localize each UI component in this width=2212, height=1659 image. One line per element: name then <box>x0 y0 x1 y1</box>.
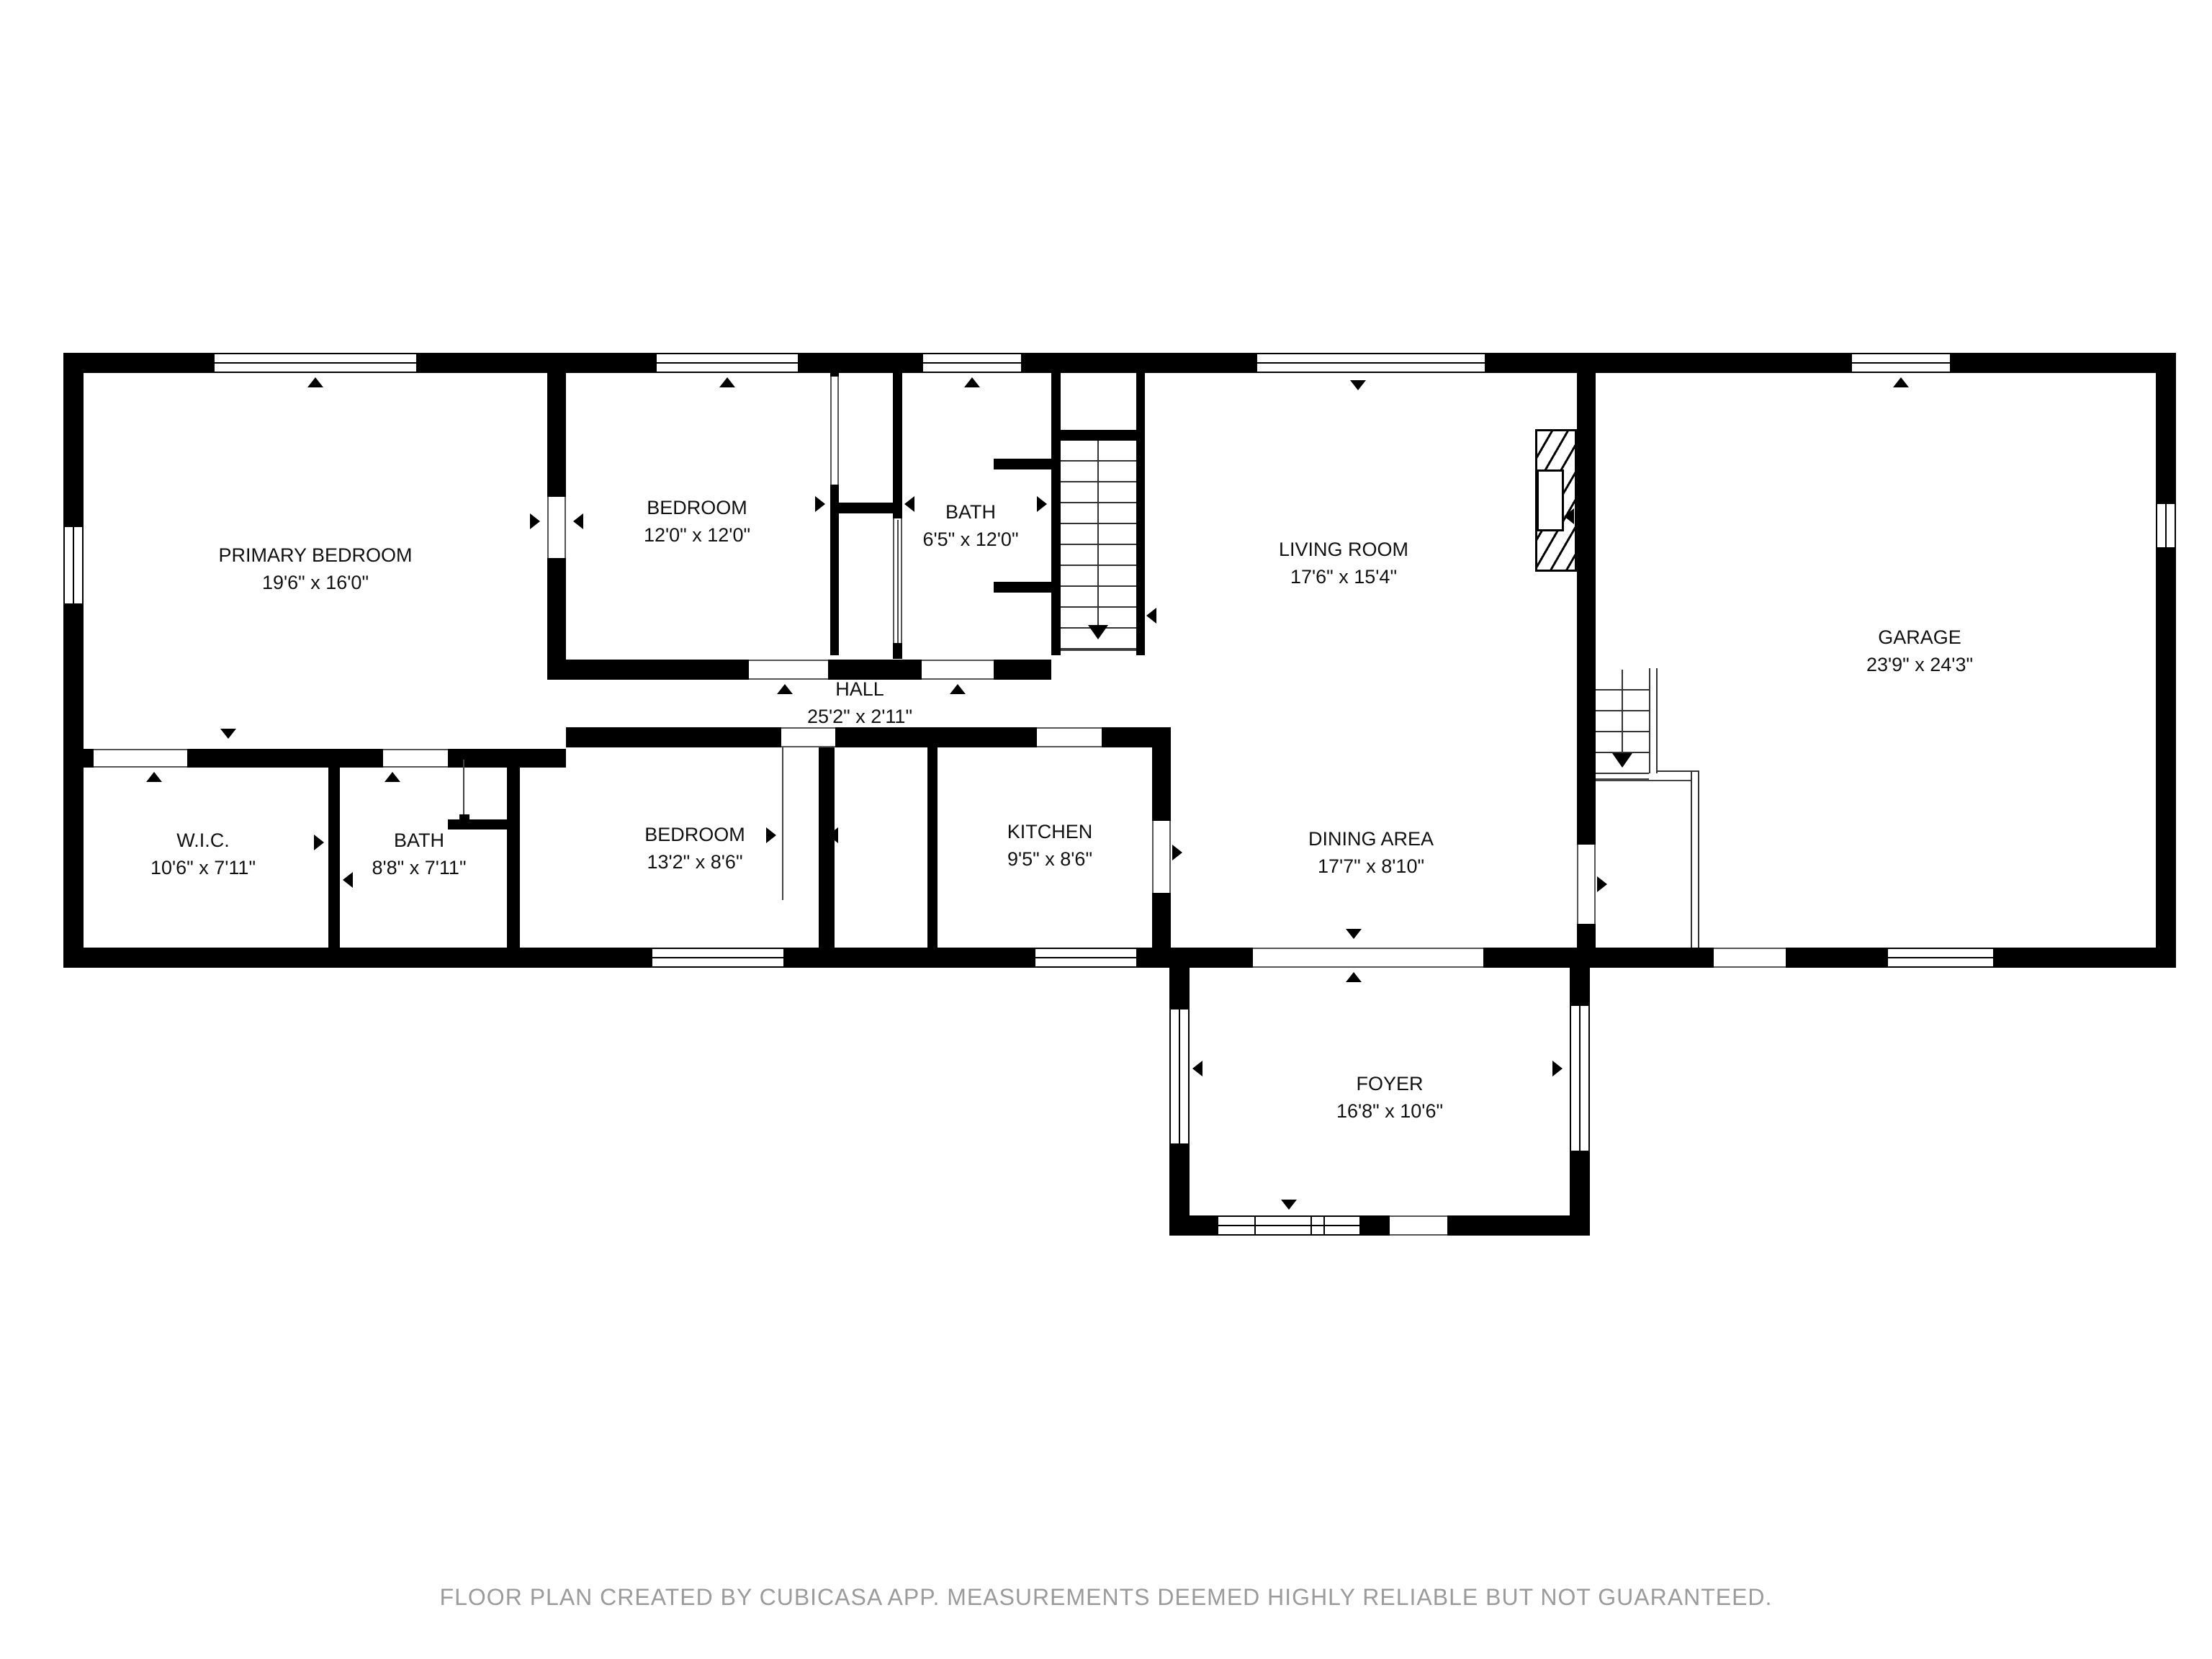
stair-down-arrow <box>1088 625 1108 639</box>
room-dims: 25'2" x 2'11" <box>807 703 912 730</box>
door-arrow <box>343 872 353 888</box>
door-arrow <box>1552 1061 1563 1076</box>
door-opening <box>1037 727 1102 747</box>
door-arrow <box>573 513 583 529</box>
room-name: BEDROOM <box>644 821 745 848</box>
floor-plan: PRIMARY BEDROOM 19'6" x 16'0" BEDROOM 12… <box>0 0 2212 1659</box>
room-dims: 19'6" x 16'0" <box>218 569 412 596</box>
door-arrow <box>1192 1061 1202 1076</box>
door-arrow <box>815 496 825 512</box>
door-arrow <box>1146 608 1156 624</box>
door-opening <box>1577 845 1596 924</box>
room-name: HALL <box>807 675 912 703</box>
stair-rail-line <box>1649 668 1650 773</box>
door-arrow <box>1037 496 1047 512</box>
door-opening <box>94 749 187 768</box>
door-arrow <box>950 684 966 694</box>
wall <box>507 749 520 948</box>
room-name: BEDROOM <box>644 494 750 521</box>
room-label-garage: GARAGE 23'9" x 24'3" <box>1866 624 1973 678</box>
door-arrow <box>1597 876 1607 892</box>
door-arrow <box>146 772 162 782</box>
window <box>213 353 418 373</box>
room-label-bath-top: BATH 6'5" x 12'0" <box>922 498 1018 553</box>
window-mullion <box>1254 1217 1256 1234</box>
room-name: GARAGE <box>1866 624 1973 651</box>
window-arrow <box>964 377 980 387</box>
window <box>1169 1008 1190 1145</box>
wall <box>994 459 1051 469</box>
wall <box>994 582 1051 593</box>
room-name: FOYER <box>1336 1070 1443 1097</box>
window <box>1851 353 1951 373</box>
room-name: BATH <box>372 827 466 854</box>
door-opening <box>1152 821 1171 893</box>
wall <box>839 503 893 513</box>
room-label-wic: W.I.C. 10'6" x 7'11" <box>150 827 256 881</box>
stair-landing-outline <box>1596 780 1691 948</box>
door-arrow <box>1346 972 1362 982</box>
window <box>63 526 84 605</box>
window-arrow <box>719 377 735 387</box>
window-arrow <box>1350 380 1366 390</box>
room-name: DINING AREA <box>1308 825 1434 853</box>
room-dims: 12'0" x 12'0" <box>644 521 750 549</box>
window-mullion <box>1310 1217 1312 1234</box>
window-arrow <box>1893 377 1909 387</box>
room-dims: 23'9" x 24'3" <box>1866 651 1973 678</box>
room-dims: 10'6" x 7'11" <box>150 854 256 881</box>
stair-rail-line <box>1656 668 1658 773</box>
stair-direction-line <box>1097 441 1099 626</box>
room-name: KITCHEN <box>1007 818 1093 845</box>
door-leaf <box>782 747 783 900</box>
door-leaf <box>463 760 464 814</box>
wall <box>1051 373 1061 655</box>
window <box>1034 948 1138 968</box>
wall <box>459 814 469 823</box>
room-name: W.I.C. <box>150 827 256 854</box>
wall <box>63 353 84 968</box>
sliding-closet-door <box>830 377 839 485</box>
window-arrow <box>307 377 323 387</box>
window <box>655 353 799 373</box>
door-arrow <box>1281 1200 1297 1210</box>
wall <box>893 643 902 659</box>
wall <box>1051 430 1145 441</box>
stair-down-arrow <box>1612 753 1632 768</box>
door-arrow <box>314 835 324 850</box>
door-arrow <box>904 496 914 512</box>
room-name: BATH <box>922 498 1018 526</box>
door-leaf <box>897 520 899 643</box>
stair-direction-line <box>1622 670 1623 755</box>
room-label-dining-area: DINING AREA 17'7" x 8'10" <box>1308 825 1434 880</box>
door-opening <box>1253 948 1483 968</box>
door-opening <box>1714 948 1786 968</box>
room-dims: 8'8" x 7'11" <box>372 854 466 881</box>
window <box>1217 1215 1361 1236</box>
window-mullion <box>1323 1217 1325 1234</box>
wall <box>2156 353 2176 968</box>
wall <box>893 373 902 528</box>
room-label-bath-lower: BATH 8'8" x 7'11" <box>372 827 466 881</box>
room-label-hall: HALL 25'2" x 2'11" <box>807 675 912 730</box>
window <box>1887 948 1995 968</box>
window <box>1570 1004 1590 1152</box>
wall <box>819 747 835 948</box>
door-arrow <box>1172 845 1182 860</box>
door-arrow <box>385 772 400 782</box>
stair-rail-line <box>1691 770 1692 948</box>
door-arrow <box>1564 508 1574 524</box>
door-arrow <box>220 729 236 739</box>
door-arrow <box>530 513 540 529</box>
fireplace-firebox <box>1537 469 1564 531</box>
room-dims: 9'5" x 8'6" <box>1007 845 1093 873</box>
window <box>2156 503 2176 549</box>
room-label-bedroom-top: BEDROOM 12'0" x 12'0" <box>644 494 750 549</box>
room-name: LIVING ROOM <box>1279 536 1408 563</box>
window <box>651 948 785 968</box>
room-label-primary-bedroom: PRIMARY BEDROOM 19'6" x 16'0" <box>218 541 412 596</box>
door-arrow <box>828 827 838 843</box>
door-arrow <box>766 827 776 843</box>
wall <box>459 751 469 760</box>
room-label-kitchen: KITCHEN 9'5" x 8'6" <box>1007 818 1093 873</box>
door-opening <box>383 749 448 768</box>
wall <box>1136 373 1145 655</box>
door-opening <box>781 727 835 747</box>
footer-disclaimer: FLOOR PLAN CREATED BY CUBICASA APP. MEAS… <box>0 1584 2212 1611</box>
room-dims: 17'6" x 15'4" <box>1279 563 1408 590</box>
room-name: PRIMARY BEDROOM <box>218 541 412 569</box>
window <box>922 353 1022 373</box>
stair-rail-line <box>1656 770 1699 772</box>
stair-rail-line <box>1698 770 1699 948</box>
window <box>1256 353 1486 373</box>
wall <box>328 749 340 948</box>
door-opening <box>547 497 566 558</box>
room-label-living-room: LIVING ROOM 17'6" x 15'4" <box>1279 536 1408 590</box>
room-label-bedroom-lower: BEDROOM 13'2" x 8'6" <box>644 821 745 876</box>
door-opening <box>922 660 994 680</box>
room-dims: 16'8" x 10'6" <box>1336 1097 1443 1125</box>
wall <box>927 747 938 948</box>
room-dims: 17'7" x 8'10" <box>1308 853 1434 880</box>
door-arrow <box>1346 929 1362 939</box>
door-arrow <box>777 684 793 694</box>
room-dims: 13'2" x 8'6" <box>644 848 745 876</box>
door-opening <box>1390 1215 1447 1236</box>
room-label-foyer: FOYER 16'8" x 10'6" <box>1336 1070 1443 1125</box>
room-dims: 6'5" x 12'0" <box>922 526 1018 553</box>
